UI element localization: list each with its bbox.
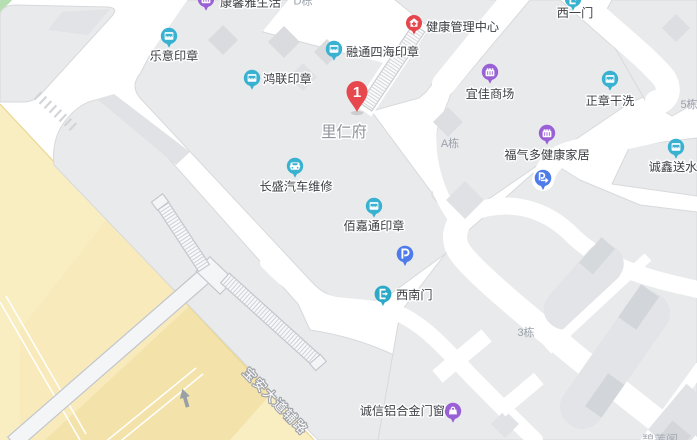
svg-text:D栋: D栋 [294,0,313,8]
svg-text:正章干洗: 正章干洗 [586,93,635,108]
svg-text:融通四海印章: 融通四海印章 [346,44,419,59]
svg-text:福气多健康家居: 福气多健康家居 [504,147,589,162]
svg-text:西南门: 西南门 [396,287,433,302]
svg-text:1: 1 [353,84,361,101]
svg-text:里仁府: 里仁府 [321,124,367,141]
svg-text:5栋: 5栋 [680,97,697,111]
svg-text:碧莲阁: 碧莲阁 [642,433,678,440]
svg-text:长盛汽车维修: 长盛汽车维修 [259,179,332,194]
svg-text:宜佳商场: 宜佳商场 [466,86,515,101]
svg-text:乐意印章: 乐意印章 [150,48,199,63]
svg-text:佰嘉通印章: 佰嘉通印章 [344,218,405,233]
svg-text:康馨雅生活: 康馨雅生活 [220,0,281,10]
svg-text:西一门: 西一门 [557,5,594,20]
svg-text:诚鑫送水: 诚鑫送水 [649,159,697,174]
svg-text:A栋: A栋 [441,136,459,150]
svg-text:健康管理中心: 健康管理中心 [426,19,499,34]
svg-text:诚信铝合金门窗: 诚信铝合金门窗 [360,403,445,418]
svg-text:3栋: 3栋 [517,325,534,339]
svg-text:鸿联印章: 鸿联印章 [263,71,312,86]
